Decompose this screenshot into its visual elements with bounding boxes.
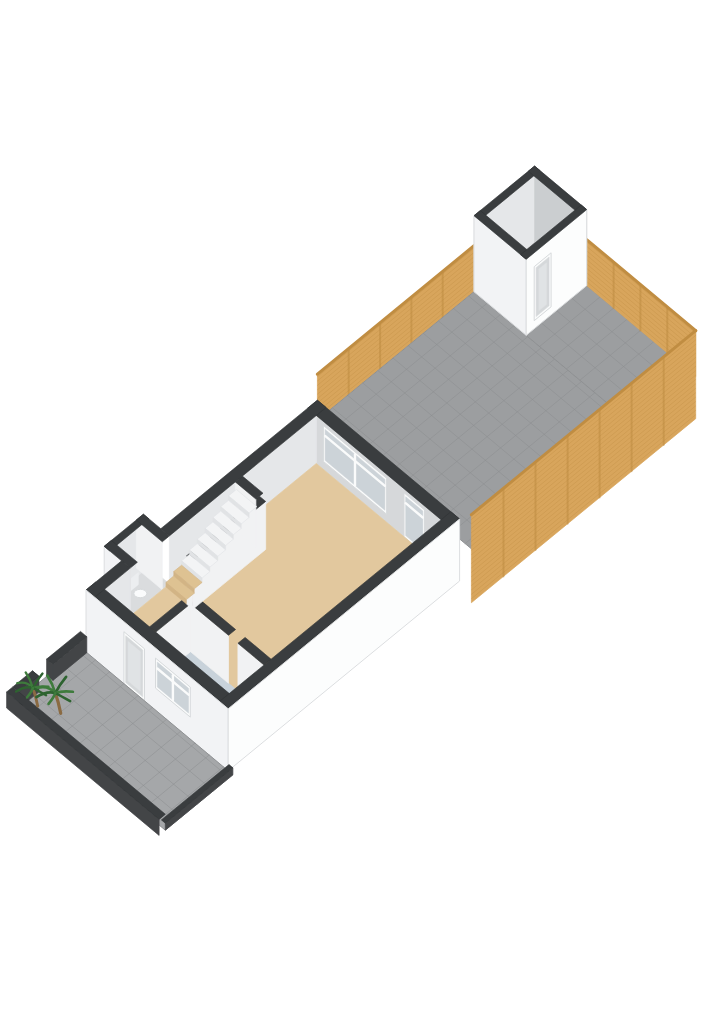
toilet-bowl <box>134 589 147 597</box>
floorplan-viewport <box>0 0 720 1018</box>
floorplan-3d-scene <box>0 0 720 1018</box>
shed-door-panel <box>539 263 547 311</box>
